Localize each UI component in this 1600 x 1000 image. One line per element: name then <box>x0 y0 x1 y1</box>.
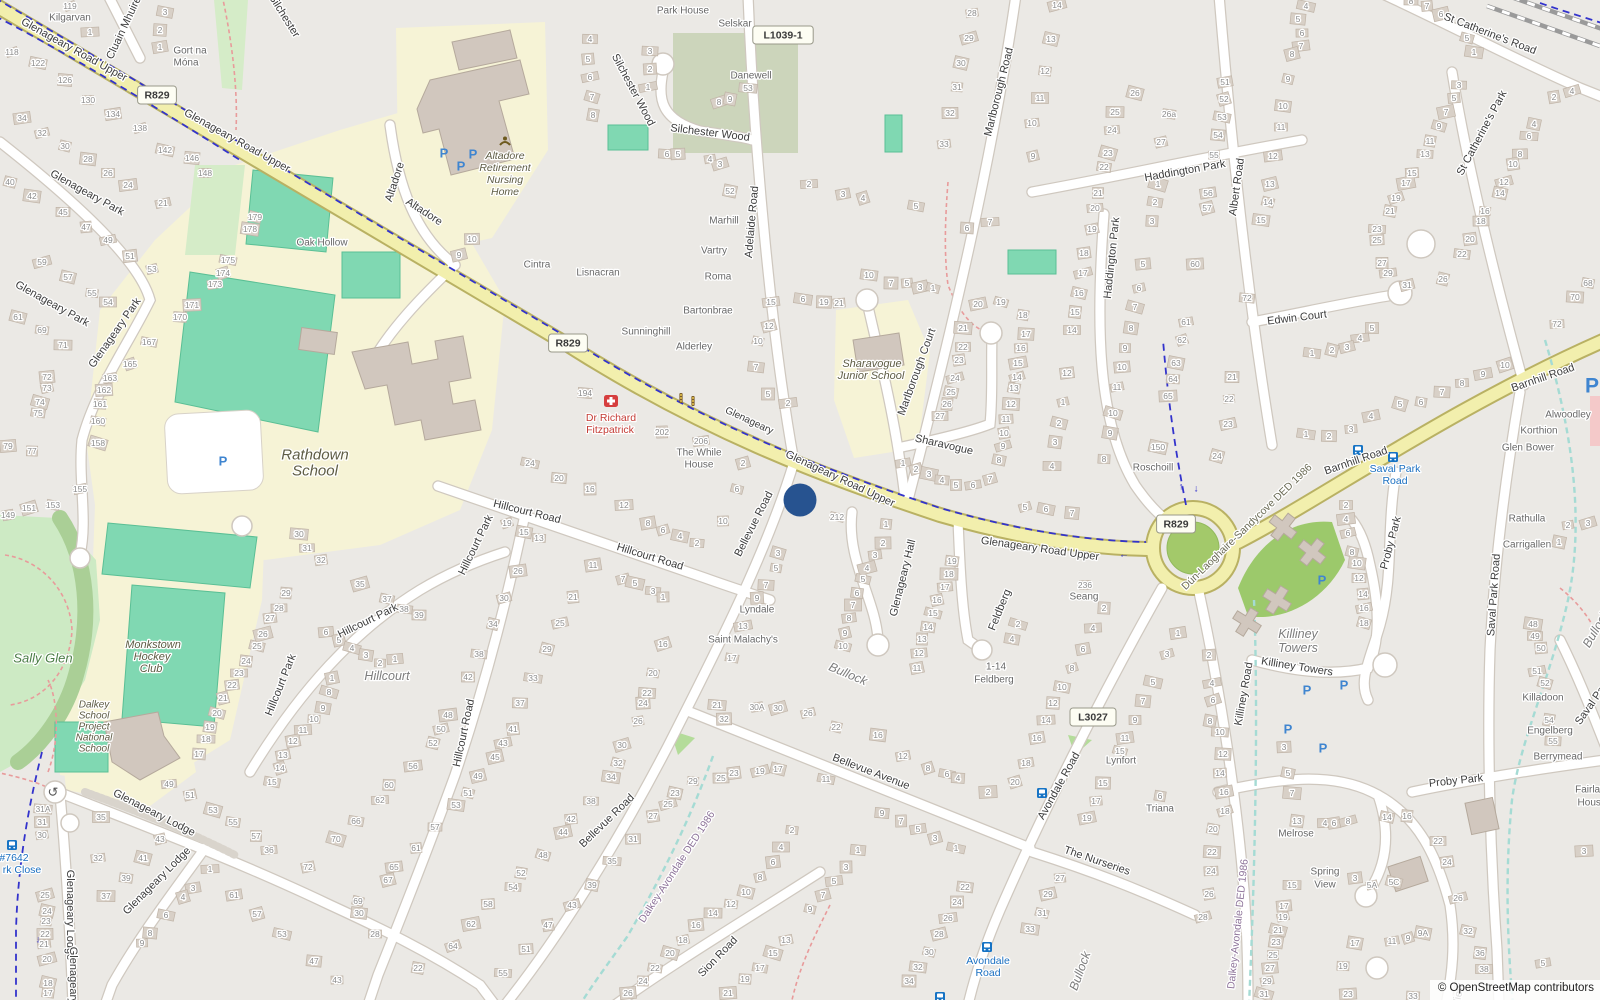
place-label: Killiney <box>1278 627 1318 641</box>
house-number: 9 <box>321 703 326 713</box>
place-label: The While <box>676 448 721 459</box>
house-number: 21 <box>1273 925 1283 935</box>
green-strip <box>185 165 245 255</box>
house-number: 16 <box>1219 787 1229 797</box>
house-number: 4 <box>865 563 870 573</box>
house-number: 161 <box>93 399 107 409</box>
house-number: 61 <box>411 843 421 853</box>
house-number: 59 <box>37 257 47 267</box>
house-number: 23 <box>670 788 680 798</box>
house-number: 23 <box>1343 989 1353 999</box>
parking-icon: P <box>1340 678 1349 693</box>
house-number: 7 <box>851 600 856 610</box>
house-number: 6 <box>971 480 976 490</box>
house-number: 8 <box>646 518 651 528</box>
house-number: 55 <box>498 968 508 978</box>
house-number: 13 <box>1046 34 1056 44</box>
house-number: 236 <box>1078 580 1092 590</box>
house-number: 6 <box>164 910 169 920</box>
house-number: 5 <box>1296 14 1301 24</box>
house-number: 178 <box>243 224 257 234</box>
house-number: 24 <box>1212 451 1222 461</box>
house-number: 36 <box>264 845 274 855</box>
bus-stop-label: rk Close <box>3 864 42 876</box>
house-number: 10 <box>1027 118 1037 128</box>
place-label: School <box>79 711 110 722</box>
route-shield-label: L1039-1 <box>763 30 802 42</box>
house-number: 17 <box>727 653 737 663</box>
house-number: 18 <box>1021 758 1031 768</box>
house-number: 16 <box>932 595 942 605</box>
place-label: School <box>79 744 110 755</box>
road-label: Silchester <box>266 0 302 40</box>
house-number: 35 <box>355 579 365 589</box>
place-label: Fairlawn <box>1575 785 1600 796</box>
house-number: 30 <box>60 141 70 151</box>
house-number: 160 <box>91 416 105 426</box>
house-number: 2 <box>986 787 991 797</box>
house-number: 38 <box>586 796 596 806</box>
house-number: 12 <box>1268 151 1278 161</box>
house-number: 26 <box>803 708 813 718</box>
house-number: 9 <box>755 593 760 603</box>
house-number: 10 <box>467 234 477 244</box>
house-number: 7 <box>899 816 904 826</box>
place-label: Seang <box>1070 592 1099 603</box>
house-number: 30 <box>354 908 364 918</box>
house-number: 3 <box>776 548 781 558</box>
house-number: 9 <box>728 94 733 104</box>
house-number: 55 <box>87 288 97 298</box>
house-number: 17 <box>1279 901 1289 911</box>
house-number: 17 <box>1350 938 1360 948</box>
house-number: 5 <box>1541 958 1546 968</box>
house-number: 48 <box>443 710 453 720</box>
house-number: 43 <box>498 738 508 748</box>
house-number: 5 <box>766 389 771 399</box>
house-number: 4 <box>1091 623 1096 633</box>
place-label: Dalkey <box>79 700 111 711</box>
house-number: 3 <box>1165 649 1170 659</box>
house-number: 18 <box>1018 310 1028 320</box>
house-number: 25 <box>946 387 956 397</box>
house-number: 75 <box>33 408 43 418</box>
house-number: 23 <box>1223 419 1233 429</box>
house-number: 126 <box>58 75 72 85</box>
house-number: 21 <box>958 323 968 333</box>
house-number: 16 <box>691 920 701 930</box>
place-label: School <box>292 463 339 480</box>
house-number: 4 <box>779 842 784 852</box>
svg-text:←: ← <box>1119 550 1129 561</box>
house-number: 5 <box>633 578 638 588</box>
house-number: 12 <box>1062 368 1072 378</box>
house-number: 52 <box>428 738 438 748</box>
house-number: 3 <box>364 650 369 660</box>
house-number: 10 <box>1500 360 1510 370</box>
house-number: 26 <box>942 399 952 409</box>
place-label: Danewell <box>730 71 771 82</box>
house-number: 49 <box>473 771 483 781</box>
place-label: Berrymead <box>1534 752 1583 763</box>
house-number: 33 <box>939 139 949 149</box>
house-number: 1 <box>884 519 889 529</box>
house-number: 68 <box>1583 278 1593 288</box>
house-number: 30 <box>956 58 966 68</box>
house-number: 2 <box>786 398 791 408</box>
house-number: 13 <box>1420 149 1430 159</box>
place-label: Melrose <box>1278 829 1314 840</box>
place-label: Marhill <box>709 216 738 227</box>
house-number: 35 <box>607 856 617 866</box>
house-number: 19 <box>1338 961 1348 971</box>
house-number: 42 <box>27 191 37 201</box>
place-label: Retirement <box>479 162 531 174</box>
house-number: 4 <box>1050 461 1055 471</box>
house-number: 24 <box>525 458 535 468</box>
house-number: 4 <box>1304 1 1309 11</box>
house-number: 12 <box>914 648 924 658</box>
place-label: Hockey <box>134 651 172 663</box>
house-number: 171 <box>185 300 199 310</box>
house-number: 8 <box>1518 149 1523 159</box>
house-number: 34 <box>17 113 27 123</box>
house-number: 14 <box>1382 812 1392 822</box>
route-shield-label: R829 <box>144 90 169 102</box>
house-number: 2 <box>1566 520 1571 530</box>
house-number: 6 <box>801 294 806 304</box>
house-number: 30A <box>749 702 764 712</box>
parking-icon: P <box>1284 722 1293 737</box>
house-number: 10 <box>309 714 319 724</box>
svg-text:↑: ↑ <box>1179 482 1184 493</box>
house-number: 11 <box>1277 122 1286 132</box>
house-number: 163 <box>103 373 117 383</box>
pitch <box>608 125 648 150</box>
house-number: 19 <box>1082 813 1092 823</box>
house-number: 22 <box>642 688 652 698</box>
parking-icon: P <box>457 159 466 174</box>
house-number: 54 <box>508 882 518 892</box>
house-number: 1 <box>1472 47 1477 57</box>
house-number: 1 <box>954 843 959 853</box>
house-number: 10 <box>1352 558 1362 568</box>
place-label: Spring <box>1311 867 1340 878</box>
attribution-text[interactable]: © OpenStreetMap contributors <box>1438 982 1594 994</box>
house-number: 21 <box>218 693 228 703</box>
house-number: 33 <box>1408 991 1418 1000</box>
house-number: 41 <box>508 724 518 734</box>
house-number: 3 <box>651 586 656 596</box>
place-label: Lyndale <box>740 605 775 616</box>
house-number: 44 <box>558 827 568 837</box>
house-number: 7 <box>1425 1 1430 11</box>
house-number: 5 <box>1370 323 1375 333</box>
house-number: 58 <box>483 899 493 909</box>
house-number: 20 <box>973 299 983 309</box>
house-number: 8 <box>1070 663 1075 673</box>
place-label: Nursing <box>487 174 523 186</box>
house-number: 29 <box>1043 889 1053 899</box>
house-number: 31 <box>37 817 47 827</box>
house-number: 202 <box>655 427 669 437</box>
place-label: Móna <box>173 58 198 69</box>
house-number: 1 <box>208 864 213 874</box>
location-marker[interactable] <box>784 484 817 517</box>
house-number: 24 <box>638 976 648 986</box>
house-number: 4 <box>956 773 961 783</box>
house-number: 1 <box>1310 348 1315 358</box>
house-number: 1 <box>856 845 861 855</box>
house-number: 158 <box>91 438 105 448</box>
map-viewport[interactable]: ↺PPPPPPPPPP↑↓←↓ R829R829R829L1039-1L3027… <box>0 0 1600 1000</box>
house-number: 30 <box>37 830 47 840</box>
place-label: Alderley <box>676 342 712 353</box>
house-number: 54 <box>103 297 113 307</box>
place-label: Bullock <box>827 660 870 689</box>
house-number: 4 <box>1369 411 1374 421</box>
house-number: 21 <box>158 198 168 208</box>
house-number: 57 <box>252 909 262 919</box>
house-number: 16 <box>1032 733 1042 743</box>
house-number: 20 <box>648 668 658 678</box>
parking-icon: P <box>1319 741 1328 756</box>
house-number: 19 <box>819 297 829 307</box>
house-number: 57 <box>1202 203 1212 213</box>
house-number: 22 <box>1224 394 1234 404</box>
place-label: Bartonbrae <box>683 306 733 317</box>
svg-text:P: P <box>1303 683 1312 698</box>
house-number: 4 <box>861 193 866 203</box>
house-number: 39 <box>121 873 131 883</box>
house-number: 18 <box>201 734 211 744</box>
house-number: 53 <box>743 83 753 93</box>
house-number: 11 <box>913 663 922 673</box>
house-number: 5 <box>586 54 591 64</box>
house-number: 65 <box>389 862 399 872</box>
place-label: Alwoodley <box>1545 410 1591 421</box>
house-number: 48 <box>1528 619 1538 629</box>
house-number: 10 <box>741 887 751 897</box>
house-number: 21 <box>834 298 844 308</box>
house-number: 66 <box>351 816 361 826</box>
house-number: 30 <box>294 529 304 539</box>
house-number: 9 <box>1286 74 1291 84</box>
house-number: 2 <box>648 64 653 74</box>
house-number: 15 <box>1115 746 1125 756</box>
house-number: 20 <box>212 708 222 718</box>
house-number: 2 <box>741 458 746 468</box>
house-number: 54 <box>1213 130 1223 140</box>
house-number: 32 <box>945 108 955 118</box>
direction-arrow-icon: ↓ <box>1194 484 1199 495</box>
house-number: 8 <box>148 928 153 938</box>
house-number: 23 <box>954 355 964 365</box>
house-number: 6 <box>1044 504 1049 514</box>
place-label: Lisnacran <box>576 268 619 279</box>
house-number: 212 <box>830 512 844 522</box>
house-number: 34 <box>904 976 914 986</box>
house-number: 26 <box>1438 274 1448 284</box>
place-label: Project <box>78 722 110 733</box>
house-number: 27 <box>935 411 945 421</box>
house-number: 53 <box>277 929 287 939</box>
house-number: 8 <box>1129 323 1134 333</box>
house-number: 18 <box>1220 806 1230 816</box>
house-number: 3 <box>873 550 878 560</box>
house-number: 16 <box>873 730 883 740</box>
house-number: 12 <box>1048 698 1058 708</box>
house-number: 21 <box>39 939 49 949</box>
house-number: 3 <box>163 7 168 17</box>
house-number: 13 <box>278 750 288 760</box>
house-number: 30 <box>499 593 509 603</box>
house-number: 8 <box>1409 0 1414 6</box>
house-number: 43 <box>155 834 165 844</box>
house-number: 5C <box>1389 877 1400 887</box>
house-number: 49 <box>1530 631 1540 641</box>
house-number: 45 <box>490 752 500 762</box>
house-number: 6 <box>771 857 776 867</box>
house-number: 57 <box>430 822 440 832</box>
house-number: 61 <box>1181 317 1191 327</box>
house-number: 22 <box>958 342 968 352</box>
house-number: 16 <box>1359 603 1369 613</box>
house-number: 11 <box>1121 733 1130 743</box>
house-number: 2 <box>158 25 163 35</box>
house-number: 175 <box>221 255 235 265</box>
house-number: 49 <box>164 779 174 789</box>
house-number: 17 <box>1021 329 1031 339</box>
route-shield-label: R829 <box>555 338 580 350</box>
house-number: 62 <box>1177 335 1187 345</box>
place-label: Feldberg <box>974 675 1013 686</box>
house-number: 61 <box>13 312 23 322</box>
parking-icon: P <box>469 147 478 162</box>
house-number: 2 <box>695 538 700 548</box>
bus-stop-label: Road <box>975 967 1000 979</box>
place-label: Junior School <box>837 370 905 382</box>
house-number: 7 <box>1290 788 1295 798</box>
house-number: 7 <box>621 574 626 584</box>
leisure-area <box>1590 396 1600 446</box>
house-number: 7 <box>821 890 826 900</box>
house-number: 4 <box>1358 333 1363 343</box>
house-number: 15 <box>1256 215 1266 225</box>
house-number: 40 <box>5 177 15 187</box>
house-number: 12 <box>898 751 908 761</box>
place-label: Cintra <box>524 260 551 271</box>
road-label: Avondale Road <box>1036 750 1083 821</box>
parking-icon: P <box>1303 683 1312 698</box>
place-label: Sharavogue <box>842 358 901 370</box>
house-number: 7 <box>1133 302 1138 312</box>
house-number: 13 <box>738 621 748 631</box>
house-number: 13 <box>781 935 791 945</box>
track-stipple <box>85 792 235 855</box>
place-label: Club <box>140 663 163 675</box>
house-number: 72 <box>303 862 313 872</box>
house-number: 19 <box>1391 193 1401 203</box>
svg-text:P: P <box>440 146 449 161</box>
place-label: Towers <box>1278 641 1318 655</box>
house-number: 194 <box>578 388 592 398</box>
house-number: 165 <box>123 359 137 369</box>
bus-stop-label: Avondale <box>966 955 1010 967</box>
house-number: 55 <box>1548 736 1558 746</box>
place-label: Hillcourt <box>364 669 410 683</box>
house-number: 10 <box>838 641 848 651</box>
house-number: 55 <box>228 817 238 827</box>
house-number: 22 <box>1099 162 1109 172</box>
house-number: 31A <box>35 804 50 814</box>
house-number: 1 <box>931 283 936 293</box>
house-number: 3 <box>718 159 723 169</box>
house-number: 30 <box>617 740 627 750</box>
house-number: 32 <box>316 555 326 565</box>
place-label: Altadore <box>484 150 524 162</box>
house-number: 6 <box>1332 818 1337 828</box>
house-number: 26 <box>1204 889 1214 899</box>
house-number: 24 <box>952 897 962 907</box>
house-number: 16 <box>585 484 595 494</box>
house-number: 26 <box>258 629 268 639</box>
house-number: 4 <box>1570 86 1575 96</box>
place-label: Selskar <box>718 19 752 30</box>
house-number: 12 <box>1006 399 1016 409</box>
house-number: 9A <box>1418 928 1429 938</box>
house-number: 5 <box>954 480 959 490</box>
house-number: 79 <box>3 441 13 451</box>
house-number: 8 <box>926 763 931 773</box>
house-number: 8 <box>1346 816 1351 826</box>
house-number: 122 <box>31 58 45 68</box>
place-label: Home <box>491 186 519 198</box>
poi-label: Dr Richard <box>586 412 636 424</box>
attribution[interactable]: © OpenStreetMap contributors <box>1430 980 1600 1000</box>
house-number: 2 <box>378 658 383 668</box>
house-number: 15 <box>766 297 776 307</box>
house-number: 60 <box>384 780 394 790</box>
house-number: 70 <box>331 834 341 844</box>
house-number: 56 <box>408 761 418 771</box>
house-number: 64 <box>1168 374 1178 384</box>
house-number: 24 <box>950 373 960 383</box>
house-number: 170 <box>173 312 187 322</box>
house-number: 53 <box>147 264 157 274</box>
place-label: Glen Bower <box>1502 443 1555 454</box>
house-number: 27 <box>1265 963 1275 973</box>
place-label: National <box>76 733 113 744</box>
house-number: 1 <box>661 592 666 602</box>
house-number: 12 <box>1040 66 1050 76</box>
house-number: 155 <box>73 484 87 494</box>
house-number: 7 <box>590 92 595 102</box>
house-number: 5A <box>1367 880 1378 890</box>
house-number: 32 <box>719 714 729 724</box>
house-number: 33 <box>528 673 538 683</box>
map-canvas[interactable]: ↺PPPPPPPPPP↑↓←↓ R829R829R829L1039-1L3027… <box>0 0 1600 1000</box>
house-number: 13 <box>917 634 927 644</box>
house-number: 9 <box>1437 121 1442 131</box>
svg-text:P: P <box>1319 741 1328 756</box>
house-number: 14 <box>1052 0 1062 10</box>
svg-text:P: P <box>219 454 228 469</box>
parking-icon: P <box>219 454 228 469</box>
house-number: 23 <box>729 768 739 778</box>
route-shield-label: L3027 <box>1078 712 1108 724</box>
house-number: 6 <box>965 223 970 233</box>
